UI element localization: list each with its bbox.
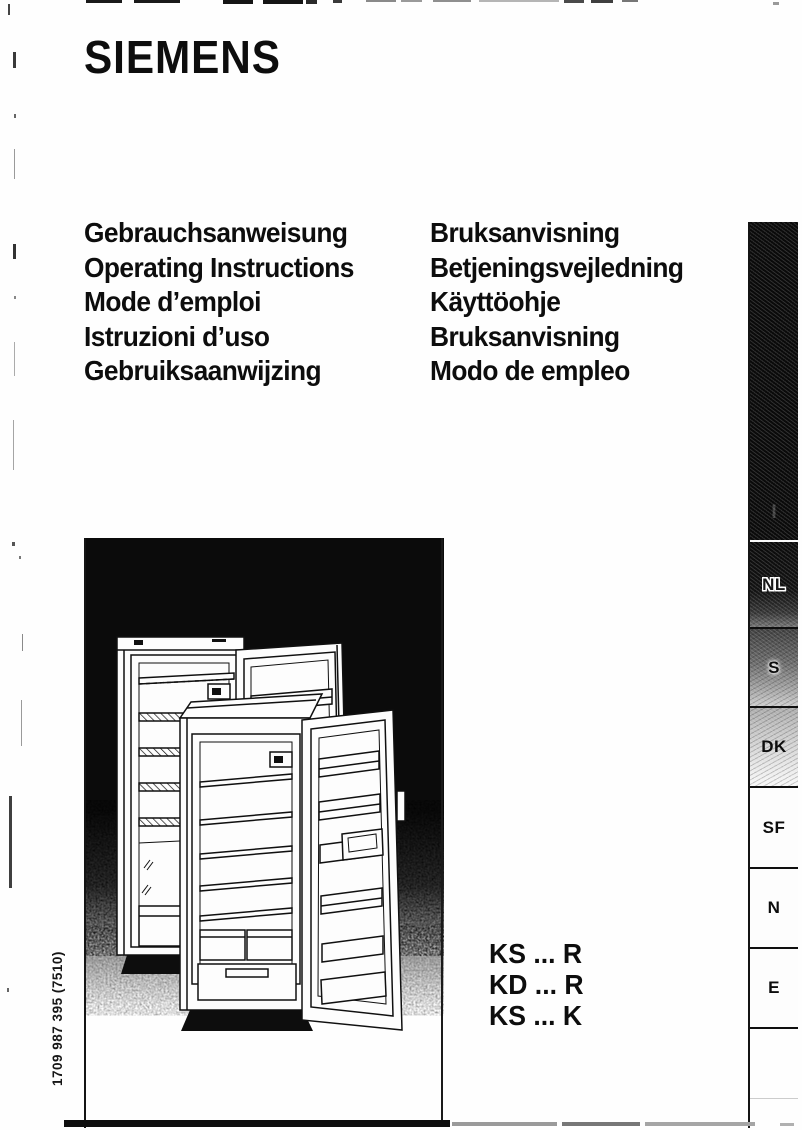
bottom-bar-segment [452,1122,557,1126]
title-line: Bruksanvisning [430,216,740,251]
scan-mark [21,700,22,746]
scan-mark [401,0,422,2]
scan-mark [622,0,638,2]
scan-mark [591,0,613,3]
scan-mark [773,2,779,5]
scan-mark [14,342,15,376]
title-line: Operating Instructions [84,251,394,286]
title-line: Bruksanvisning [430,320,740,355]
title-line: Betjeningsvejledning [430,251,740,286]
sidebar-faint-line [750,1098,798,1099]
front-fridge [180,694,322,1031]
title-line: Gebruiksaanwijzing [84,354,394,389]
sidebar-tab-nl: NL [750,542,798,629]
illustration-left-border [84,538,86,1128]
scan-mark [433,0,471,2]
scan-mark [13,52,16,68]
bottom-bar-segment [64,1120,450,1127]
title-line: Modo de empleo [430,354,740,389]
sidebar-tab-dk: DK [750,708,798,788]
scan-mark [14,149,15,179]
model-code-line: KS ... R [489,938,584,969]
title-line: Gebrauchsanweisung [84,216,394,251]
manual-cover-page: SIEMENS Gebrauchsanweisung Operating Ins… [0,0,802,1130]
scan-mark [333,0,342,3]
order-number-vertical: 1709 987 395 (7510) [50,946,70,1092]
model-codes: KS ... R KD ... R KS ... K [489,938,584,1031]
titles-column-right: Bruksanvisning Betjeningsvejledning Käyt… [430,216,740,389]
scan-mark [564,0,584,3]
bottom-bar-segment [562,1122,640,1126]
scan-mark [14,114,16,118]
scan-mark [223,0,253,4]
sidebar-tab-s: S [750,629,798,708]
sidebar-black-block: I [750,222,798,542]
scan-mark [14,296,16,299]
title-line: Mode d’emploi [84,285,394,320]
refrigerators-illustration [84,538,444,1038]
scan-mark [263,0,303,4]
scan-mark [306,0,317,4]
illustration-right-border [441,538,443,1126]
sidebar-tab-n: N [750,869,798,949]
sidebar-filler [750,1029,798,1098]
language-tab-sidebar: I NL S DK SF N E [748,222,798,1128]
scan-mark [7,988,9,992]
scan-mark [19,556,21,559]
title-line: Istruzioni d’uso [84,320,394,355]
sidebar-tab-e: E [750,949,798,1029]
sidebar-tab-sf: SF [750,788,798,869]
bottom-bar-segment [645,1122,755,1126]
scan-mark [134,0,180,3]
scan-mark [86,0,122,3]
title-line: Käyttöohje [430,285,740,320]
front-fridge-door [302,710,405,1030]
scan-mark [12,542,15,546]
sidebar-tab-i-faint: I [750,502,798,524]
scan-mark [366,0,396,2]
scan-mark [9,796,12,888]
titles-column-left: Gebrauchsanweisung Operating Instruction… [84,216,394,389]
model-code-line: KD ... R [489,969,584,1000]
scan-mark [479,0,559,2]
scan-mark [13,244,16,259]
scan-mark [8,4,10,15]
brand-logo: SIEMENS [84,30,281,84]
bottom-bar-segment [780,1123,794,1126]
model-code-line: KS ... K [489,1000,584,1031]
scan-mark [13,420,14,470]
scan-mark [22,634,23,651]
